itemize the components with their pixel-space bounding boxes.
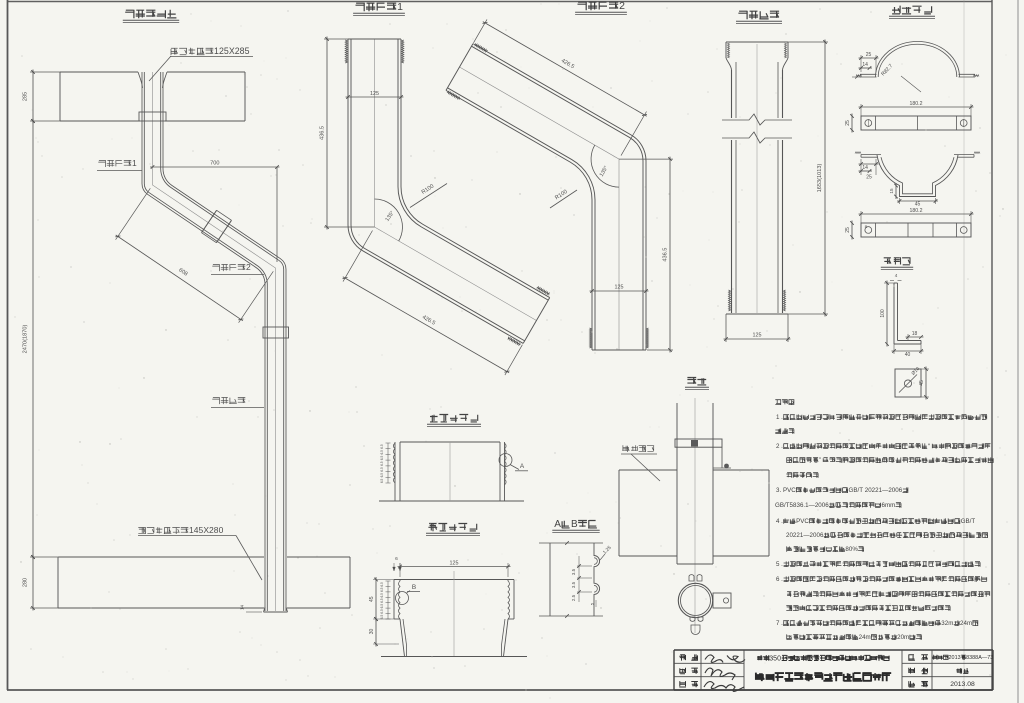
svg-text:6.5: 6.5	[380, 444, 384, 449]
svg-text:8388A—73: 8388A—73	[966, 655, 993, 661]
svg-text:6.5: 6.5	[380, 478, 384, 483]
svg-text:350: 350	[769, 656, 781, 663]
svg-text:2013: 2013	[949, 655, 961, 661]
svg-text:45: 45	[919, 380, 925, 386]
svg-text:45: 45	[369, 596, 375, 602]
svg-text:125: 125	[753, 333, 762, 339]
svg-text:180.2: 180.2	[910, 208, 923, 214]
svg-text:R: R	[865, 225, 868, 229]
svg-text:B: B	[412, 584, 416, 591]
svg-text:100: 100	[880, 309, 886, 318]
svg-text:”: ”	[819, 457, 821, 464]
svg-text:40: 40	[905, 352, 911, 358]
svg-text:GB/T: GB/T	[961, 518, 976, 525]
svg-text:14: 14	[862, 62, 868, 68]
svg-text:1: 1	[397, 1, 403, 13]
svg-text:25: 25	[845, 120, 851, 126]
svg-text:6mm: 6mm	[882, 502, 896, 509]
svg-text:25: 25	[866, 52, 872, 58]
svg-text:6.5: 6.5	[380, 587, 384, 592]
svg-text:1: 1	[132, 158, 137, 168]
svg-text:6.5: 6.5	[380, 609, 384, 614]
svg-text:GB/T 20221—2006: GB/T 20221—2006	[849, 487, 903, 494]
svg-text:6.5: 6.5	[380, 593, 384, 598]
svg-text:6.5: 6.5	[380, 467, 384, 472]
svg-text:6.5: 6.5	[380, 456, 384, 461]
svg-text:20m: 20m	[897, 634, 909, 641]
svg-text:25: 25	[845, 227, 851, 233]
svg-text:14: 14	[240, 605, 245, 610]
svg-text:5: 5	[591, 603, 595, 605]
svg-text:6.5: 6.5	[380, 461, 384, 466]
svg-text:2013.08: 2013.08	[950, 681, 975, 688]
svg-text:280: 280	[23, 578, 29, 587]
svg-text:6.5: 6.5	[380, 582, 384, 587]
svg-text:80%: 80%	[845, 546, 858, 553]
svg-text:2.5: 2.5	[571, 594, 576, 601]
svg-text:24m: 24m	[960, 620, 972, 627]
svg-text:15: 15	[889, 188, 894, 194]
svg-text:3. PVC: 3. PVC	[776, 487, 796, 494]
svg-text:285: 285	[23, 92, 29, 101]
svg-text:700: 700	[210, 161, 219, 167]
svg-text:125: 125	[615, 285, 624, 291]
svg-text:30: 30	[369, 629, 375, 635]
svg-text:1653(1013): 1653(1013)	[817, 164, 823, 193]
svg-text:6.5: 6.5	[380, 598, 384, 603]
svg-text:A: A	[554, 519, 561, 530]
svg-text:125X285: 125X285	[214, 46, 250, 56]
svg-text:6: 6	[395, 556, 398, 562]
svg-text:6.5: 6.5	[380, 604, 384, 609]
svg-text:“: “	[928, 443, 930, 450]
svg-text:B: B	[571, 519, 578, 530]
svg-text:125: 125	[450, 561, 459, 567]
svg-text:6.5: 6.5	[380, 615, 384, 620]
svg-text:3.5: 3.5	[571, 581, 576, 588]
svg-text:20221—2006: 20221—2006	[786, 532, 824, 539]
svg-text:2470(1870): 2470(1870)	[23, 325, 29, 354]
svg-text:436.5: 436.5	[319, 126, 325, 140]
svg-text:18: 18	[912, 331, 918, 337]
svg-text:2: 2	[619, 0, 625, 12]
svg-text:14: 14	[862, 165, 868, 171]
svg-text:145X280: 145X280	[189, 525, 224, 535]
svg-text:24m: 24m	[859, 634, 871, 641]
svg-text:6.5: 6.5	[380, 473, 384, 478]
svg-text:3.5: 3.5	[571, 568, 576, 575]
svg-text:PVC: PVC	[796, 518, 809, 525]
svg-text:4: 4	[895, 273, 898, 278]
svg-text:6.5: 6.5	[380, 450, 384, 455]
svg-text:A: A	[520, 463, 525, 470]
svg-text:125: 125	[370, 91, 379, 97]
svg-text:25: 25	[866, 175, 872, 181]
svg-text:436.5: 436.5	[662, 248, 668, 262]
svg-text:GB/T5836.1—2006: GB/T5836.1—2006	[775, 502, 829, 509]
svg-text:32m: 32m	[941, 620, 953, 627]
svg-text:2: 2	[246, 262, 251, 272]
svg-text:180.2: 180.2	[910, 101, 923, 107]
svg-text:45: 45	[915, 201, 921, 207]
